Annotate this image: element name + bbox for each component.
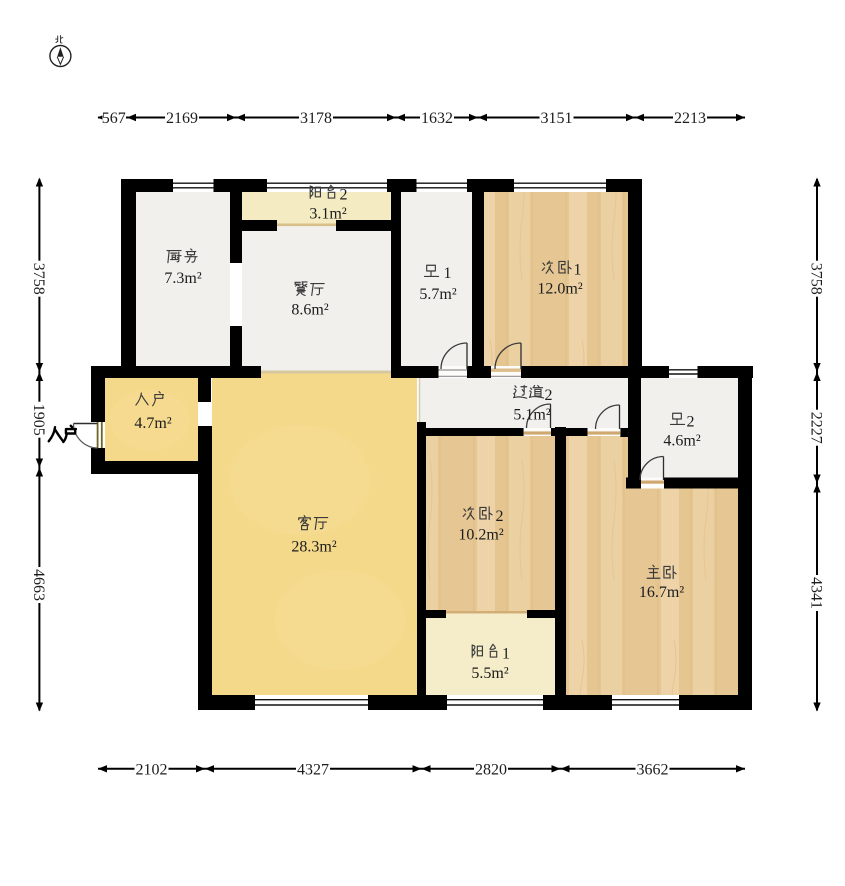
svg-text:2213: 2213 (674, 110, 706, 127)
svg-text:10.2m²: 10.2m² (458, 527, 503, 544)
svg-text:3178: 3178 (300, 110, 332, 127)
svg-text:1632: 1632 (421, 110, 453, 127)
svg-text:1: 1 (574, 262, 582, 279)
svg-text:567: 567 (102, 110, 126, 127)
svg-text:1: 1 (502, 646, 510, 663)
svg-text:2820: 2820 (475, 761, 507, 778)
svg-text:3662: 3662 (637, 761, 669, 778)
svg-text:5.1m²: 5.1m² (513, 407, 550, 424)
svg-text:28.3m²: 28.3m² (291, 539, 336, 556)
svg-text:3758: 3758 (808, 263, 825, 295)
svg-text:1: 1 (444, 265, 452, 282)
svg-text:3.1m²: 3.1m² (309, 206, 346, 223)
svg-text:3151: 3151 (541, 110, 573, 127)
svg-text:4663: 4663 (30, 569, 47, 601)
svg-text:2: 2 (496, 508, 504, 525)
svg-text:8.6m²: 8.6m² (291, 302, 328, 319)
svg-text:2: 2 (340, 187, 348, 204)
svg-text:7.3m²: 7.3m² (164, 270, 201, 287)
svg-text:2: 2 (545, 387, 553, 404)
svg-text:2227: 2227 (808, 412, 825, 444)
svg-text:12.0m²: 12.0m² (537, 281, 582, 298)
svg-text:1905: 1905 (30, 404, 47, 436)
svg-text:4341: 4341 (808, 577, 825, 609)
svg-text:16.7m²: 16.7m² (639, 584, 684, 601)
svg-text:2: 2 (687, 414, 695, 431)
svg-text:4327: 4327 (297, 761, 329, 778)
svg-text:4.7m²: 4.7m² (134, 415, 171, 432)
svg-text:3758: 3758 (30, 263, 47, 295)
svg-text:2102: 2102 (136, 761, 168, 778)
svg-text:2169: 2169 (166, 110, 198, 127)
svg-text:5.7m²: 5.7m² (419, 286, 456, 303)
svg-text:4.6m²: 4.6m² (663, 433, 700, 450)
svg-text:5.5m²: 5.5m² (471, 665, 508, 682)
